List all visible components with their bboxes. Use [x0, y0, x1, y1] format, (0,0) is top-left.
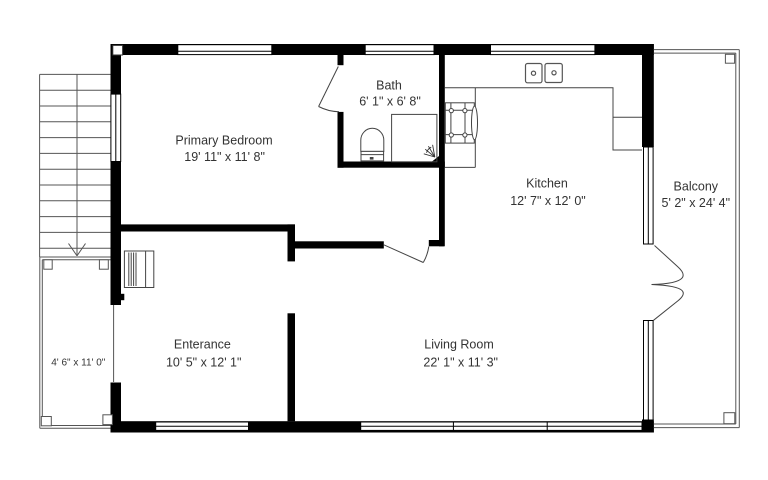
svg-text:4' 6" x 11' 0": 4' 6" x 11' 0" — [51, 357, 106, 368]
svg-text:6' 1" x 6' 8": 6' 1" x 6' 8" — [359, 95, 421, 109]
svg-text:10' 5" x 12' 1": 10' 5" x 12' 1" — [166, 356, 242, 370]
svg-text:12' 7" x 12' 0": 12' 7" x 12' 0" — [510, 194, 586, 208]
svg-text:Bath: Bath — [376, 79, 402, 93]
svg-text:Kitchen: Kitchen — [526, 177, 568, 191]
svg-text:5' 2" x 24' 4": 5' 2" x 24' 4" — [662, 196, 731, 210]
svg-text:Balcony: Balcony — [674, 179, 719, 193]
svg-text:19' 11" x 11' 8": 19' 11" x 11' 8" — [184, 150, 265, 164]
svg-text:Primary Bedroom: Primary Bedroom — [175, 134, 272, 148]
svg-text:Enterance: Enterance — [174, 338, 231, 352]
svg-text:Living Room: Living Room — [424, 338, 493, 352]
svg-text:22' 1" x 11' 3": 22' 1" x 11' 3" — [423, 356, 498, 370]
